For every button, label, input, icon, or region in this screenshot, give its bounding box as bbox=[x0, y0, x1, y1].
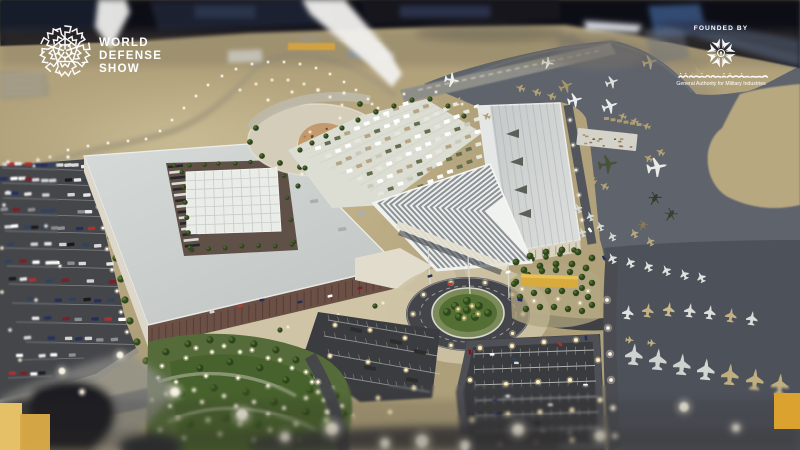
svg-text:General Authority for Military: General Authority for Military Industrie… bbox=[676, 81, 766, 87]
svg-text:DEFENSE: DEFENSE bbox=[99, 49, 162, 62]
svg-text:WORLD: WORLD bbox=[99, 36, 149, 49]
svg-text:SHOW: SHOW bbox=[99, 62, 140, 75]
svg-text:FOUNDED BY: FOUNDED BY bbox=[694, 25, 749, 32]
